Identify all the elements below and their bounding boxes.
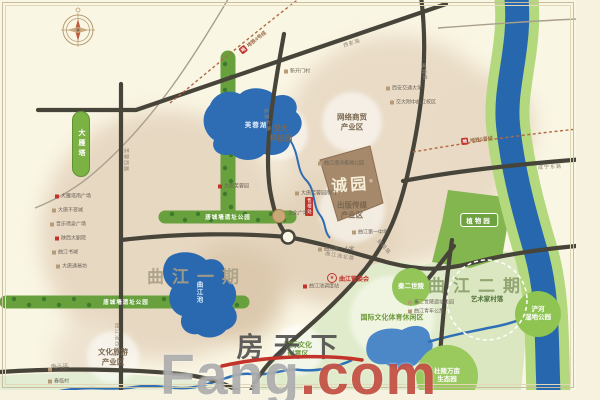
zone-label-line: 艺术家村落 [471, 296, 504, 304]
poi-icon [390, 100, 394, 104]
zone-label: 浐河湿地公园 [525, 306, 551, 322]
poi-label: 西安交通大学 [386, 85, 422, 92]
poi-icon [56, 264, 60, 268]
poi-label: 大唐不夜城 [52, 207, 83, 214]
zone-label-line: 国际文化体育休闲区 [361, 313, 424, 322]
zone-label: 杜陵万亩生态园 [434, 368, 460, 384]
poi-label: 曲江池调度站 [303, 283, 339, 290]
metro-icon: 地 [461, 137, 469, 145]
poi-label: 大唐芙蓉园南门 [295, 190, 336, 197]
poi-icon [386, 86, 390, 90]
poi-name: 春临村 [54, 378, 69, 385]
poi-label: 大唐通易坊 [56, 263, 87, 270]
poi-label: 陕西大剧院 [55, 235, 86, 242]
poi-label: 大雁塔南广场 [55, 193, 91, 200]
poi-label: 曲江书城 [52, 249, 78, 256]
metro-line-name: 地铁5号线 [470, 135, 493, 144]
poi-name: 文化广场 [288, 210, 308, 217]
road-name-label: 芙蓉西路 [123, 148, 130, 172]
zone-label: 网络商贸产业区 [337, 112, 367, 132]
poi-icon [408, 309, 412, 313]
poi-name: 交大附中曲江校区 [396, 99, 436, 106]
zone-label-line: 交大 [270, 123, 293, 133]
poi-icon [52, 250, 56, 254]
poi-name: 西安交通大学 [392, 85, 422, 92]
zone-label-line: 科技园 [270, 133, 293, 143]
zone-label-line: 湿地公园 [525, 314, 551, 322]
poi-label: 曲江海洋极地公园 [318, 160, 364, 167]
zone-label-line: 产业区 [337, 210, 367, 220]
zone-label-line: 生态园 [434, 376, 460, 384]
poi-name: 曲江第一中学 [358, 229, 388, 236]
poi-icon [50, 222, 54, 226]
poi-name: 曲江书城 [58, 249, 78, 256]
zone-label-line: 秦二世陵 [398, 283, 424, 291]
poi-icon [284, 69, 288, 73]
poi-label: 三兆村 [48, 366, 69, 373]
poi-icon [303, 284, 307, 288]
poi-name: 大唐芙蓉园南门 [301, 190, 336, 197]
zone-label-line: 浐河 [525, 306, 551, 314]
poi-label: 大唐芙蓉园 [218, 183, 249, 190]
poi-name: 大唐通易坊 [62, 263, 87, 270]
road-name-label: 曲江池西路 [114, 323, 121, 353]
map-canvas: 大雁塔 植物园 诚园® 售楼处 ★ 曲江管委会 交大科技园网络商贸产业区出版传媒… [0, 0, 600, 400]
poi-label: 新开门村 [284, 68, 310, 75]
poi-icon [55, 194, 59, 198]
poi-name: 陕西大剧院 [61, 235, 86, 242]
poi-name: 大唐芙蓉园 [224, 183, 249, 190]
poi-name: 大唐不夜城 [58, 207, 83, 214]
poi-label: 秦二世陵遗址公园 [408, 299, 454, 306]
lake-label: 曲江池 [193, 281, 203, 304]
road-name-label: 雁翔路 [419, 63, 428, 82]
poi-icon [48, 367, 52, 371]
watermark-swoosh [210, 348, 380, 372]
poi-icon [55, 236, 59, 240]
road-name-label: 雁翔路 [375, 238, 392, 256]
poi-icon [295, 191, 299, 195]
zone-label-line: 出版传媒 [337, 200, 367, 210]
poi-name: 三兆村 [54, 366, 69, 373]
district-title: 曲江二期 [428, 272, 528, 297]
poi-icon [408, 300, 412, 304]
poi-icon [352, 230, 356, 234]
metro-line-name: 地铁4号线 [245, 29, 267, 49]
park-label: 唐城墙遗址公园 [205, 213, 251, 221]
poi-name: 曲江池调度站 [309, 283, 339, 290]
poi-label: 交大附中曲江校区 [390, 99, 436, 106]
zone-label-line: 杜陵万亩 [434, 368, 460, 376]
zone-label: 艺术家村落 [471, 296, 504, 304]
poi-name: 新开门村 [290, 68, 310, 75]
poi-icon [48, 379, 52, 383]
poi-label: 曲江青年公寓 [408, 308, 444, 315]
poi-name: 音乐喷泉广场 [56, 221, 86, 228]
poi-icon [52, 208, 56, 212]
zone-label-line: 网络商贸 [337, 112, 367, 122]
zone-label: 出版传媒产业区 [337, 200, 367, 220]
zone-label: 秦二世陵 [398, 283, 424, 291]
road-name-label: 咸宁东路 [538, 163, 562, 171]
poi-label: 春临村 [48, 378, 69, 385]
road-name-label: 西影路 [342, 37, 361, 49]
park-label: 唐城墙遗址公园 [103, 298, 149, 306]
poi-name: 曲江第一小学 [324, 246, 354, 253]
zone-label: 交大科技园 [270, 123, 293, 143]
poi-icon [318, 161, 322, 165]
poi-name: 大雁塔南广场 [61, 193, 91, 200]
poi-label: 音乐喷泉广场 [50, 221, 86, 228]
metro-line-badge: 地地铁4号线 [238, 29, 267, 54]
poi-icon [318, 247, 322, 251]
poi-label: 曲江第一小学 [318, 246, 354, 253]
zone-label-line: 产业区 [337, 122, 367, 132]
poi-name: 秦二世陵遗址公园 [414, 299, 454, 306]
poi-name: 曲江海洋极地公园 [324, 160, 364, 167]
poi-label: 文化广场 [288, 210, 308, 217]
zone-label-line: 产业区 [98, 357, 128, 367]
poi-label: 曲江第一中学 [352, 229, 388, 236]
zone-label: 国际文化体育休闲区 [361, 313, 424, 322]
metro-line-badge: 地地铁5号线 [461, 135, 493, 145]
poi-name: 曲江青年公寓 [414, 308, 444, 315]
poi-icon [218, 184, 222, 188]
